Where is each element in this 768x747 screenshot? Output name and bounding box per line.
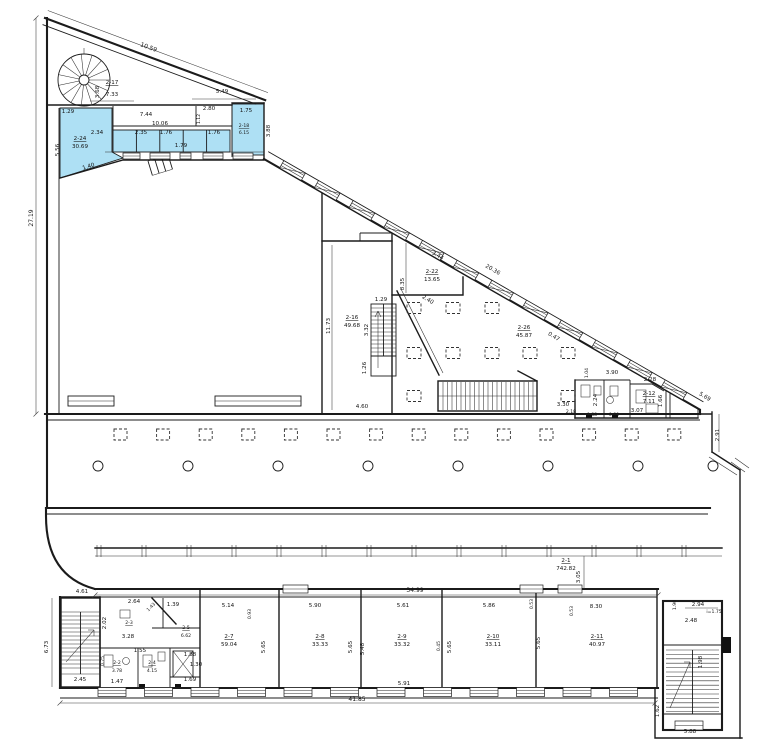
dimension-label: 2.91: [715, 428, 721, 441]
dimension-label: 1.29: [375, 297, 388, 303]
dimension-label: 1.26: [362, 361, 368, 374]
column-square: [114, 429, 127, 440]
room-label: 2-4: [148, 660, 156, 666]
dimension-label: 33.11: [485, 642, 501, 648]
dimension-label: 1.79: [175, 143, 188, 149]
dimension-label: 2.94: [692, 602, 705, 608]
dimension-label: 59.04: [221, 642, 237, 648]
dimension-label: 4.60: [356, 404, 369, 410]
dimension-label: 3.05: [576, 570, 582, 583]
room-label: 2-5: [182, 625, 190, 631]
dimension-label: 1.75: [240, 108, 253, 114]
dimension-label: 5.69: [698, 391, 712, 403]
dimension-label: 1.43: [146, 602, 158, 614]
room-label: 2-8: [315, 634, 325, 640]
room-label: 2-11: [591, 634, 604, 640]
dimension-label: 10.06: [152, 121, 168, 127]
dimension-label: 3.32: [364, 324, 370, 336]
dimension-label: 0.75: [100, 656, 106, 666]
dimension-label: 8.30: [590, 604, 603, 610]
dimension-label: 27.19: [28, 209, 35, 226]
room-label: 2-2: [113, 660, 121, 666]
dimension-label: 3.07: [631, 408, 644, 414]
dimension-label: 1.47: [111, 679, 124, 685]
room-label: 2-24: [74, 136, 87, 142]
dimension-label: 49.68: [344, 323, 360, 329]
dimension-label: 742.82: [556, 566, 576, 572]
hall-long-staircase: [438, 371, 537, 411]
dimension-label: 1.66: [658, 394, 664, 407]
dimension-label: 5.65: [348, 640, 354, 653]
column-circle: [363, 461, 373, 471]
dimension-label: 2.64: [128, 599, 141, 605]
column-square: [485, 303, 499, 314]
room-label: 2-26: [518, 325, 531, 331]
dimension-label: 0.88: [587, 412, 597, 418]
door-marker: [722, 637, 731, 653]
dimension-label: 5.65: [261, 640, 267, 653]
dimension-label: 5.48: [360, 642, 366, 655]
dimension-label: 5.65: [536, 636, 542, 649]
dimension-label: 1.04: [584, 368, 590, 378]
dimension-label: 0.80: [609, 412, 619, 418]
dimension-label: 3.90: [606, 370, 619, 376]
dimension-label: 1.12: [196, 114, 202, 124]
column-circle: [273, 461, 283, 471]
dimension-label: 1.62: [655, 705, 661, 717]
column-square: [157, 429, 170, 440]
dimension-label: 2.02: [102, 617, 108, 629]
dimension-label: 2.18: [566, 409, 576, 415]
dimension-label: 0.45: [436, 641, 442, 651]
dimension-label: 5.14: [222, 603, 235, 609]
room-label: 2-22: [426, 269, 439, 275]
dimension-label: 40.97: [589, 642, 605, 648]
dimension-label: 5.56: [55, 143, 61, 156]
room-label: 2-10: [487, 634, 500, 640]
dimension-label: 6.62: [181, 633, 191, 639]
column-square: [540, 429, 553, 440]
dimension-label: 7.44: [140, 112, 153, 118]
column-square: [199, 429, 212, 440]
column-square: [485, 348, 499, 359]
column-square: [561, 348, 575, 359]
dimension-label: 45.87: [516, 333, 532, 339]
column-square: [327, 429, 340, 440]
room-label: 2-18: [239, 123, 250, 129]
dimension-label: 30.69: [72, 144, 88, 150]
dimension-label: 0.53: [529, 599, 535, 609]
dimension-label: 6.15: [239, 130, 249, 136]
dimension-label: 41.85: [348, 696, 365, 703]
dimension-label: 2.28: [644, 377, 657, 383]
floor-plan-page: 10.593.682-177.335.491.297.4410.062.801.…: [0, 0, 768, 747]
dimension-label: 1.30: [190, 662, 203, 668]
dimension-label: 10.59: [139, 41, 158, 54]
dimension-label: i=1.75: [706, 609, 721, 615]
dimension-label: 1.76: [208, 130, 221, 136]
column-square: [412, 429, 425, 440]
dimension-label: 34.99: [406, 587, 423, 594]
dimension-label: 5.91: [398, 681, 411, 687]
floor-plan-svg: 10.593.682-177.335.491.297.4410.062.801.…: [0, 0, 768, 747]
room-label: 2-9: [397, 634, 407, 640]
dimension-label: 2.24: [593, 393, 599, 406]
dimension-label: 3.28: [122, 634, 135, 640]
dimension-label: 4.61: [76, 589, 89, 595]
room-label: 2-3: [125, 620, 133, 626]
dimension-label: 2.35: [135, 130, 148, 136]
dimension-label: 1.88: [184, 652, 197, 658]
terrace-ticks: [97, 545, 686, 557]
dimension-label: 11.73: [326, 318, 332, 334]
dimension-label: 0.93: [247, 609, 253, 619]
column-square: [625, 429, 638, 440]
dimension-label: 2.80: [203, 106, 216, 112]
dimension-label: 1.76: [160, 130, 173, 136]
column-square: [455, 429, 468, 440]
top-hypotenuse: [43, 11, 268, 107]
column-circle: [708, 461, 718, 471]
dimension-label: 20.36: [484, 264, 501, 277]
dimension-label: 3.78: [112, 668, 122, 674]
dimension-label: 1.39: [167, 602, 180, 608]
dimension-label: 2.45: [74, 677, 87, 683]
dimension-label: 7.11: [643, 399, 656, 405]
corridor-columns: [93, 429, 718, 471]
dimension-label: 33.32: [394, 642, 410, 648]
room-label: 2-12: [643, 391, 656, 397]
dimension-label: 5.49: [216, 89, 229, 95]
column-circle: [543, 461, 553, 471]
column-square: [497, 429, 510, 440]
dimension-label: 1.90: [672, 600, 678, 610]
column-circle: [183, 461, 193, 471]
right-staircase: [666, 650, 719, 714]
column-square: [561, 391, 575, 402]
column-square: [523, 348, 537, 359]
column-square: [407, 391, 421, 402]
dimension-label: 5.65: [447, 640, 453, 653]
dimension-label: 2.48: [685, 618, 698, 624]
diagonal-window-band: [264, 152, 703, 410]
dimension-label: 4.15: [147, 668, 157, 674]
fixtures: [104, 385, 658, 687]
column-square: [407, 348, 421, 359]
column-square: [407, 303, 421, 314]
column-circle: [633, 461, 643, 471]
column-circle: [453, 461, 463, 471]
dimension-label: 3.88: [266, 124, 272, 137]
room-label: 2-7: [224, 634, 234, 640]
dimension-label: 0.53: [569, 606, 575, 616]
left-staircase: [61, 598, 100, 687]
column-square: [668, 429, 681, 440]
dimension-label: 6.73: [44, 640, 50, 653]
column-square: [583, 429, 596, 440]
dimension-label: 1.55: [134, 648, 147, 654]
dimension-label: 5.86: [483, 603, 496, 609]
dimension-label: 1.29: [62, 109, 75, 115]
column-circle: [93, 461, 103, 471]
dimension-label: 3.30: [557, 402, 570, 408]
dimension-label: 7.33: [106, 92, 119, 98]
room-label: 2-17: [106, 80, 119, 86]
dimension-label: 33.33: [312, 642, 328, 648]
column-square: [242, 429, 255, 440]
dimension-label: 5.90: [309, 603, 322, 609]
dimension-label: 5.61: [397, 603, 410, 609]
spiral-staircase: [58, 48, 110, 106]
column-square: [446, 348, 460, 359]
dimension-label: 0.47: [547, 331, 561, 343]
dimension-label: 1.98: [698, 655, 704, 668]
column-square: [446, 303, 460, 314]
dimension-label: 1.69: [184, 677, 197, 683]
dimension-label: 13.65: [424, 277, 440, 283]
room-label: 2-1: [561, 558, 571, 564]
dimension-label: 5.88: [684, 729, 697, 735]
dimension-label: 3.68: [95, 85, 101, 98]
dimension-label: 2.40: [421, 294, 435, 306]
dimension-label: 2.34: [91, 130, 104, 136]
dimension-label: 8.35: [400, 277, 406, 290]
room-label: 2-16: [346, 315, 359, 321]
column-square: [370, 429, 383, 440]
column-square: [284, 429, 297, 440]
